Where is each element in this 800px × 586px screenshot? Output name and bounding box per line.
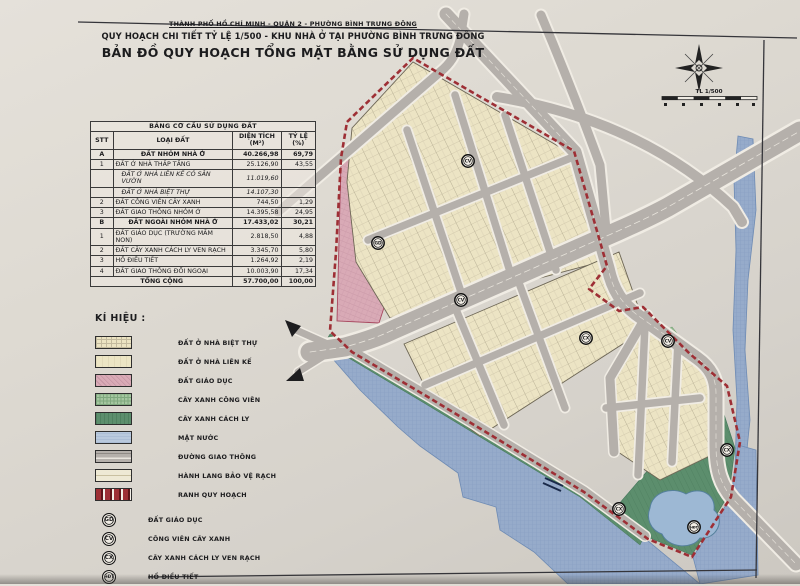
table-cell: 1,29 <box>281 197 315 207</box>
table-cell: ĐẤT Ở NHÀ THẤP TẦNG <box>113 159 233 169</box>
table-cell <box>91 187 114 197</box>
map-marker-cx: CX <box>721 444 733 456</box>
legend-item-road: ĐƯỜNG GIAO THÔNG <box>95 447 276 466</box>
table-cell: ĐẤT CÂY XANH CÁCH LY VEN RẠCH <box>113 246 233 256</box>
legend-item-boundary: RANH QUY HOẠCH <box>95 485 276 504</box>
table-total-row: TỔNG CỘNG57.700,00100,00 <box>91 276 316 286</box>
legend-symbol-gd: GDĐẤT GIÁO DỤC <box>95 510 276 529</box>
table-cell: 3.345,70 <box>233 246 281 256</box>
table-cell: ĐẤT Ở NHÀ BIỆT THỰ <box>113 187 233 197</box>
legend-item-rowhouse: ĐẤT Ở NHÀ LIÊN KẾ <box>95 352 276 371</box>
legend-swatch-list: ĐẤT Ở NHÀ BIỆT THỰĐẤT Ở NHÀ LIÊN KẾĐẤT G… <box>95 333 276 504</box>
legend-item-label: ĐƯỜNG GIAO THÔNG <box>178 453 256 461</box>
map-marker-cv: CV <box>662 335 674 347</box>
legend-item-label: ĐẤT GIÁO DỤC <box>178 377 233 385</box>
table-cell: 17.433,02 <box>233 218 281 228</box>
table-title: BẢNG CƠ CẤU SỬ DỤNG ĐẤT <box>91 122 316 132</box>
gd-symbol-icon: GD <box>102 513 116 527</box>
legend-item-label: ĐẤT Ở NHÀ BIỆT THỰ <box>178 339 257 347</box>
table-row: 2ĐẤT CÔNG VIÊN CÂY XANH744,501,29 <box>91 197 316 207</box>
total-percent: 100,00 <box>281 276 315 286</box>
legend-item-label: CÂY XANH CÔNG VIÊN <box>178 396 260 404</box>
legend-item-label: MẶT NƯỚC <box>178 434 218 442</box>
total-area: 57.700,00 <box>233 276 281 286</box>
column-header: DIỆN TÍCH(M²) <box>233 132 281 149</box>
table-cell: 3 <box>91 208 114 218</box>
legend-item-park: CÂY XANH CÔNG VIÊN <box>95 390 276 409</box>
table-row: 1ĐẤT Ở NHÀ THẤP TẦNG25.126,9043,55 <box>91 159 316 169</box>
table-cell: 3 <box>91 256 114 266</box>
table-cell: ĐẤT GIAO THÔNG NHÓM Ở <box>113 208 233 218</box>
table-cell: A <box>91 149 114 159</box>
table-cell <box>91 170 114 187</box>
svg-text:CV: CV <box>465 159 472 165</box>
column-header: TỶ LỆ(%) <box>281 132 315 149</box>
table-row: AĐẤT NHÓM NHÀ Ở40.266,9869,79 <box>91 149 316 159</box>
table-cell: HỒ ĐIỀU TIẾT <box>113 256 233 266</box>
table-cell: ĐẤT NHÓM NHÀ Ở <box>113 149 233 159</box>
header-locality: THÀNH PHỐ HỒ CHÍ MINH - QUẬN 2 - PHƯỜNG … <box>58 20 528 28</box>
svg-text:HĐT: HĐT <box>690 526 699 530</box>
frame-right <box>756 40 764 578</box>
legend-symbol-label: CÔNG VIÊN CÂY XANH <box>148 535 230 543</box>
svg-text:CX: CX <box>616 507 623 513</box>
column-header: LOẠI ĐẤT <box>113 132 233 149</box>
table-header-row: STTLOẠI ĐẤTDIỆN TÍCH(M²)TỶ LỆ(%) <box>91 132 316 149</box>
table-row: 3HỒ ĐIỀU TIẾT1.264,922,19 <box>91 256 316 266</box>
table-cell: 4 <box>91 266 114 276</box>
svg-text:CX: CX <box>583 336 590 342</box>
table-cell: 4,88 <box>281 228 315 245</box>
legend-item-water: MẶT NƯỚC <box>95 428 276 447</box>
table-title-row: BẢNG CƠ CẤU SỬ DỤNG ĐẤT <box>91 122 316 132</box>
table-cell: 14.395,58 <box>233 208 281 218</box>
map-marker-cv: CV <box>455 294 467 306</box>
legend-symbol-label: CÂY XANH CÁCH LY VEN RẠCH <box>148 554 260 562</box>
table-cell: ĐẤT NGOÀI NHÓM NHÀ Ở <box>113 218 233 228</box>
table-cell <box>281 170 315 187</box>
map-marker-hđt: HĐT <box>688 521 700 533</box>
table-cell: 1.264,92 <box>233 256 281 266</box>
table-cell: 17,34 <box>281 266 315 276</box>
legend-item-label: RANH QUY HOẠCH <box>178 491 247 499</box>
table-cell: 2.818,50 <box>233 228 281 245</box>
legend-item-corridor: HÀNH LANG BẢO VỆ RẠCH <box>95 466 276 485</box>
rowhouse-swatch <box>95 355 132 368</box>
corridor-swatch <box>95 469 132 482</box>
water-swatch <box>95 431 132 444</box>
scanned-plan-photo: { "header": { "line1": "THÀNH PHỐ HỒ CHÍ… <box>0 0 800 584</box>
map-marker-cx: CX <box>580 332 592 344</box>
scale-bar: TL 1/500 <box>662 89 757 106</box>
map-marker-cx: CX <box>613 503 625 515</box>
park-swatch <box>95 393 132 406</box>
compass-rose <box>675 44 723 92</box>
table-cell: 10.003,90 <box>233 266 281 276</box>
legend-item-label: CÂY XANH CÁCH LY <box>178 415 249 423</box>
table-cell: 24,95 <box>281 208 315 218</box>
table-cell: 2 <box>91 246 114 256</box>
table-cell: 2 <box>91 197 114 207</box>
sheet-header: THÀNH PHỐ HỒ CHÍ MINH - QUẬN 2 - PHƯỜNG … <box>58 20 528 60</box>
legend-title: KÍ HIỆU : <box>95 313 276 324</box>
land-use-table: BẢNG CƠ CẤU SỬ DỤNG ĐẤT STTLOẠI ĐẤTDIỆN … <box>90 121 316 287</box>
table-row: 4ĐẤT GIAO THÔNG ĐỐI NGOẠI10.003,9017,34 <box>91 266 316 276</box>
total-label: TỔNG CỘNG <box>91 276 233 286</box>
cv-symbol-icon: CV <box>102 532 116 546</box>
map-title: BẢN ĐỒ QUY HOẠCH TỔNG MẶT BẰNG SỬ DỤNG Đ… <box>58 45 528 61</box>
legend-symbol-cv: CVCÔNG VIÊN CÂY XANH <box>95 529 276 548</box>
svg-text:CV: CV <box>665 339 672 345</box>
table-row: ĐẤT Ở NHÀ BIỆT THỰ14.107,30 <box>91 187 316 197</box>
table-row: 3ĐẤT GIAO THÔNG NHÓM Ở14.395,5824,95 <box>91 208 316 218</box>
table-row: ĐẤT Ở NHÀ LIÊN KẾ CÓ SÂN VƯỜN11.019,60 <box>91 170 316 187</box>
table-cell: B <box>91 218 114 228</box>
table-cell: ĐẤT GIAO THÔNG ĐỐI NGOẠI <box>113 266 233 276</box>
land-use-table-body: AĐẤT NHÓM NHÀ Ở40.266,9869,791ĐẤT Ở NHÀ … <box>91 149 316 286</box>
table-cell: ĐẤT GIÁO DỤC (TRƯỜNG MẦM NON) <box>113 228 233 245</box>
svg-text:CX: CX <box>724 448 731 454</box>
svg-text:CV: CV <box>458 298 465 304</box>
table-cell: 69,79 <box>281 149 315 159</box>
table-cell: ĐẤT CÔNG VIÊN CÂY XANH <box>113 197 233 207</box>
legend-symbol-label: ĐẤT GIÁO DỤC <box>148 516 203 524</box>
legend-item-label: HÀNH LANG BẢO VỆ RẠCH <box>178 472 276 480</box>
table-cell: ĐẤT Ở NHÀ LIÊN KẾ CÓ SÂN VƯỜN <box>113 170 233 187</box>
table-cell: 14.107,30 <box>233 187 281 197</box>
table-row: BĐẤT NGOÀI NHÓM NHÀ Ở17.433,0230,21 <box>91 218 316 228</box>
map-marker-cv: CV <box>462 155 474 167</box>
table-cell: 25.126,90 <box>233 159 281 169</box>
legend-symbol-cx: CXCÂY XANH CÁCH LY VEN RẠCH <box>95 548 276 567</box>
table-cell: 40.266,98 <box>233 149 281 159</box>
legend-item-buffer: CÂY XANH CÁCH LY <box>95 409 276 428</box>
table-cell: 1 <box>91 159 114 169</box>
map-legend: KÍ HIỆU : ĐẤT Ở NHÀ BIỆT THỰĐẤT Ở NHÀ LI… <box>95 313 276 586</box>
cx-symbol-icon: CX <box>102 551 116 565</box>
table-row: 1ĐẤT GIÁO DỤC (TRƯỜNG MẦM NON)2.818,504,… <box>91 228 316 245</box>
table-cell: 2,19 <box>281 256 315 266</box>
table-cell: 11.019,60 <box>233 170 281 187</box>
legend-item-villa: ĐẤT Ở NHÀ BIỆT THỰ <box>95 333 276 352</box>
svg-text:GD: GD <box>374 241 382 247</box>
header-plan-name: QUY HOẠCH CHI TIẾT TỶ LỆ 1/500 - KHU NHÀ… <box>58 31 528 42</box>
column-header: STT <box>91 132 114 149</box>
table-cell: 1 <box>91 228 114 245</box>
table-cell: 5,80 <box>281 246 315 256</box>
legend-item-label: ĐẤT Ở NHÀ LIÊN KẾ <box>178 358 252 366</box>
table-cell <box>281 187 315 197</box>
map-marker-gd: GD <box>372 237 384 249</box>
table-cell: 30,21 <box>281 218 315 228</box>
scale-label: TL 1/500 <box>696 89 723 95</box>
table-cell: 744,50 <box>233 197 281 207</box>
legend-item-education: ĐẤT GIÁO DỤC <box>95 371 276 390</box>
table-cell: 43,55 <box>281 159 315 169</box>
boundary-swatch <box>95 488 132 501</box>
buffer-swatch <box>95 412 132 425</box>
villa-swatch <box>95 336 132 349</box>
road-swatch <box>95 450 132 463</box>
education-swatch <box>95 374 132 387</box>
table-row: 2ĐẤT CÂY XANH CÁCH LY VEN RẠCH3.345,705,… <box>91 246 316 256</box>
desk-surface-shadow <box>0 574 800 584</box>
